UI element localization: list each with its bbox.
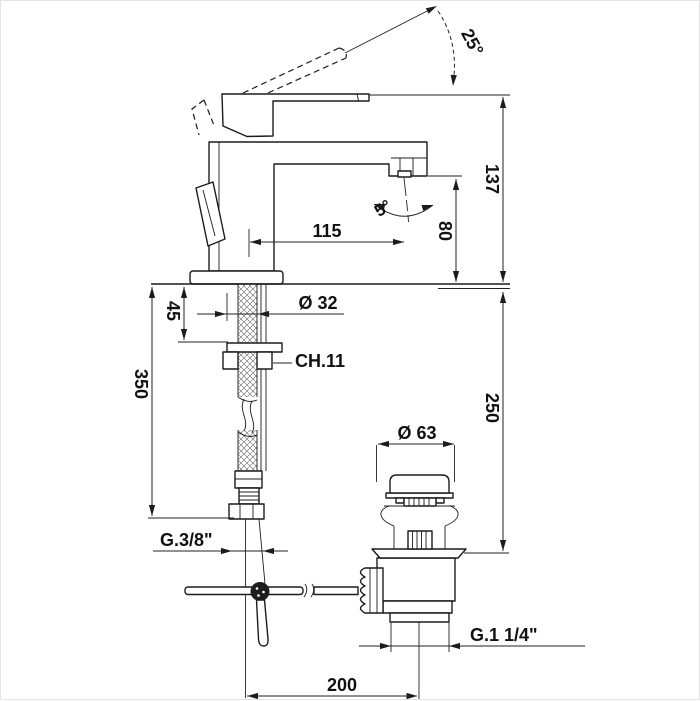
waste-cap-diameter-dimension: Ø 63 bbox=[377, 423, 455, 482]
dim-label-drain-height: 250 bbox=[482, 393, 502, 423]
knurled-connector-nut bbox=[361, 568, 384, 613]
ball-joint bbox=[251, 582, 270, 601]
spray-angle-dimension: 5° bbox=[371, 178, 434, 222]
pop-up-drain bbox=[361, 475, 467, 622]
dim-label-supply-thread: G.3/8" bbox=[160, 530, 213, 550]
dim-label-shank-diameter: Ø 32 bbox=[298, 293, 337, 313]
drain-flange bbox=[372, 549, 466, 558]
hose-hex-nut bbox=[229, 504, 264, 519]
hose-length-dimension: 350 bbox=[131, 287, 234, 518]
dim-label-waste-cap-diameter: Ø 63 bbox=[397, 423, 436, 443]
aerator-outlet bbox=[398, 171, 411, 177]
lever-angle-dimension: 25° bbox=[345, 3, 488, 86]
basin-mixer-dimension-drawing: 25° bbox=[1, 1, 700, 701]
waste-plug-cap bbox=[390, 475, 449, 493]
dim-label-spray-angle: 5° bbox=[371, 196, 395, 221]
shank-diameter-dimension: Ø 32 bbox=[197, 293, 344, 321]
horizontal-link-rod bbox=[185, 587, 303, 595]
technical-drawing-canvas: 25° bbox=[0, 0, 700, 700]
drain-height-dimension: 250 bbox=[464, 292, 509, 553]
dim-label-hose-length: 350 bbox=[131, 369, 151, 399]
wrench-size-label: CH.11 bbox=[273, 351, 345, 371]
faucet-body bbox=[190, 94, 427, 284]
total-height-dimension: 137 bbox=[369, 95, 510, 282]
base-plate bbox=[190, 271, 283, 284]
drain-offset-dimension: 200 bbox=[247, 622, 419, 699]
drain-tailpipe bbox=[390, 613, 449, 622]
ch11-nut bbox=[257, 352, 272, 369]
drain-body bbox=[377, 558, 455, 601]
dim-label-spout-height: 80 bbox=[435, 221, 455, 241]
waste-thread-dimension: G.1 1/4" bbox=[359, 622, 585, 652]
dim-label-total-height: 137 bbox=[482, 164, 502, 194]
supply-thread-dimension: G.3/8" bbox=[153, 530, 288, 554]
dim-label-spout-reach: 115 bbox=[312, 221, 341, 241]
pull-rod-lower bbox=[257, 600, 269, 646]
dim-label-wrench-size: CH.11 bbox=[295, 351, 345, 371]
lever-handle bbox=[222, 94, 369, 137]
dim-label-drain-offset: 200 bbox=[327, 675, 357, 695]
dim-label-lever-angle: 25° bbox=[457, 25, 487, 58]
spout-height-dimension: 80 bbox=[428, 176, 462, 282]
shank-washer bbox=[227, 343, 282, 352]
supply-hose-and-shank bbox=[223, 284, 282, 519]
dim-label-waste-thread: G.1 1/4" bbox=[470, 625, 538, 645]
dim-label-deck-thickness: 45 bbox=[163, 301, 183, 321]
